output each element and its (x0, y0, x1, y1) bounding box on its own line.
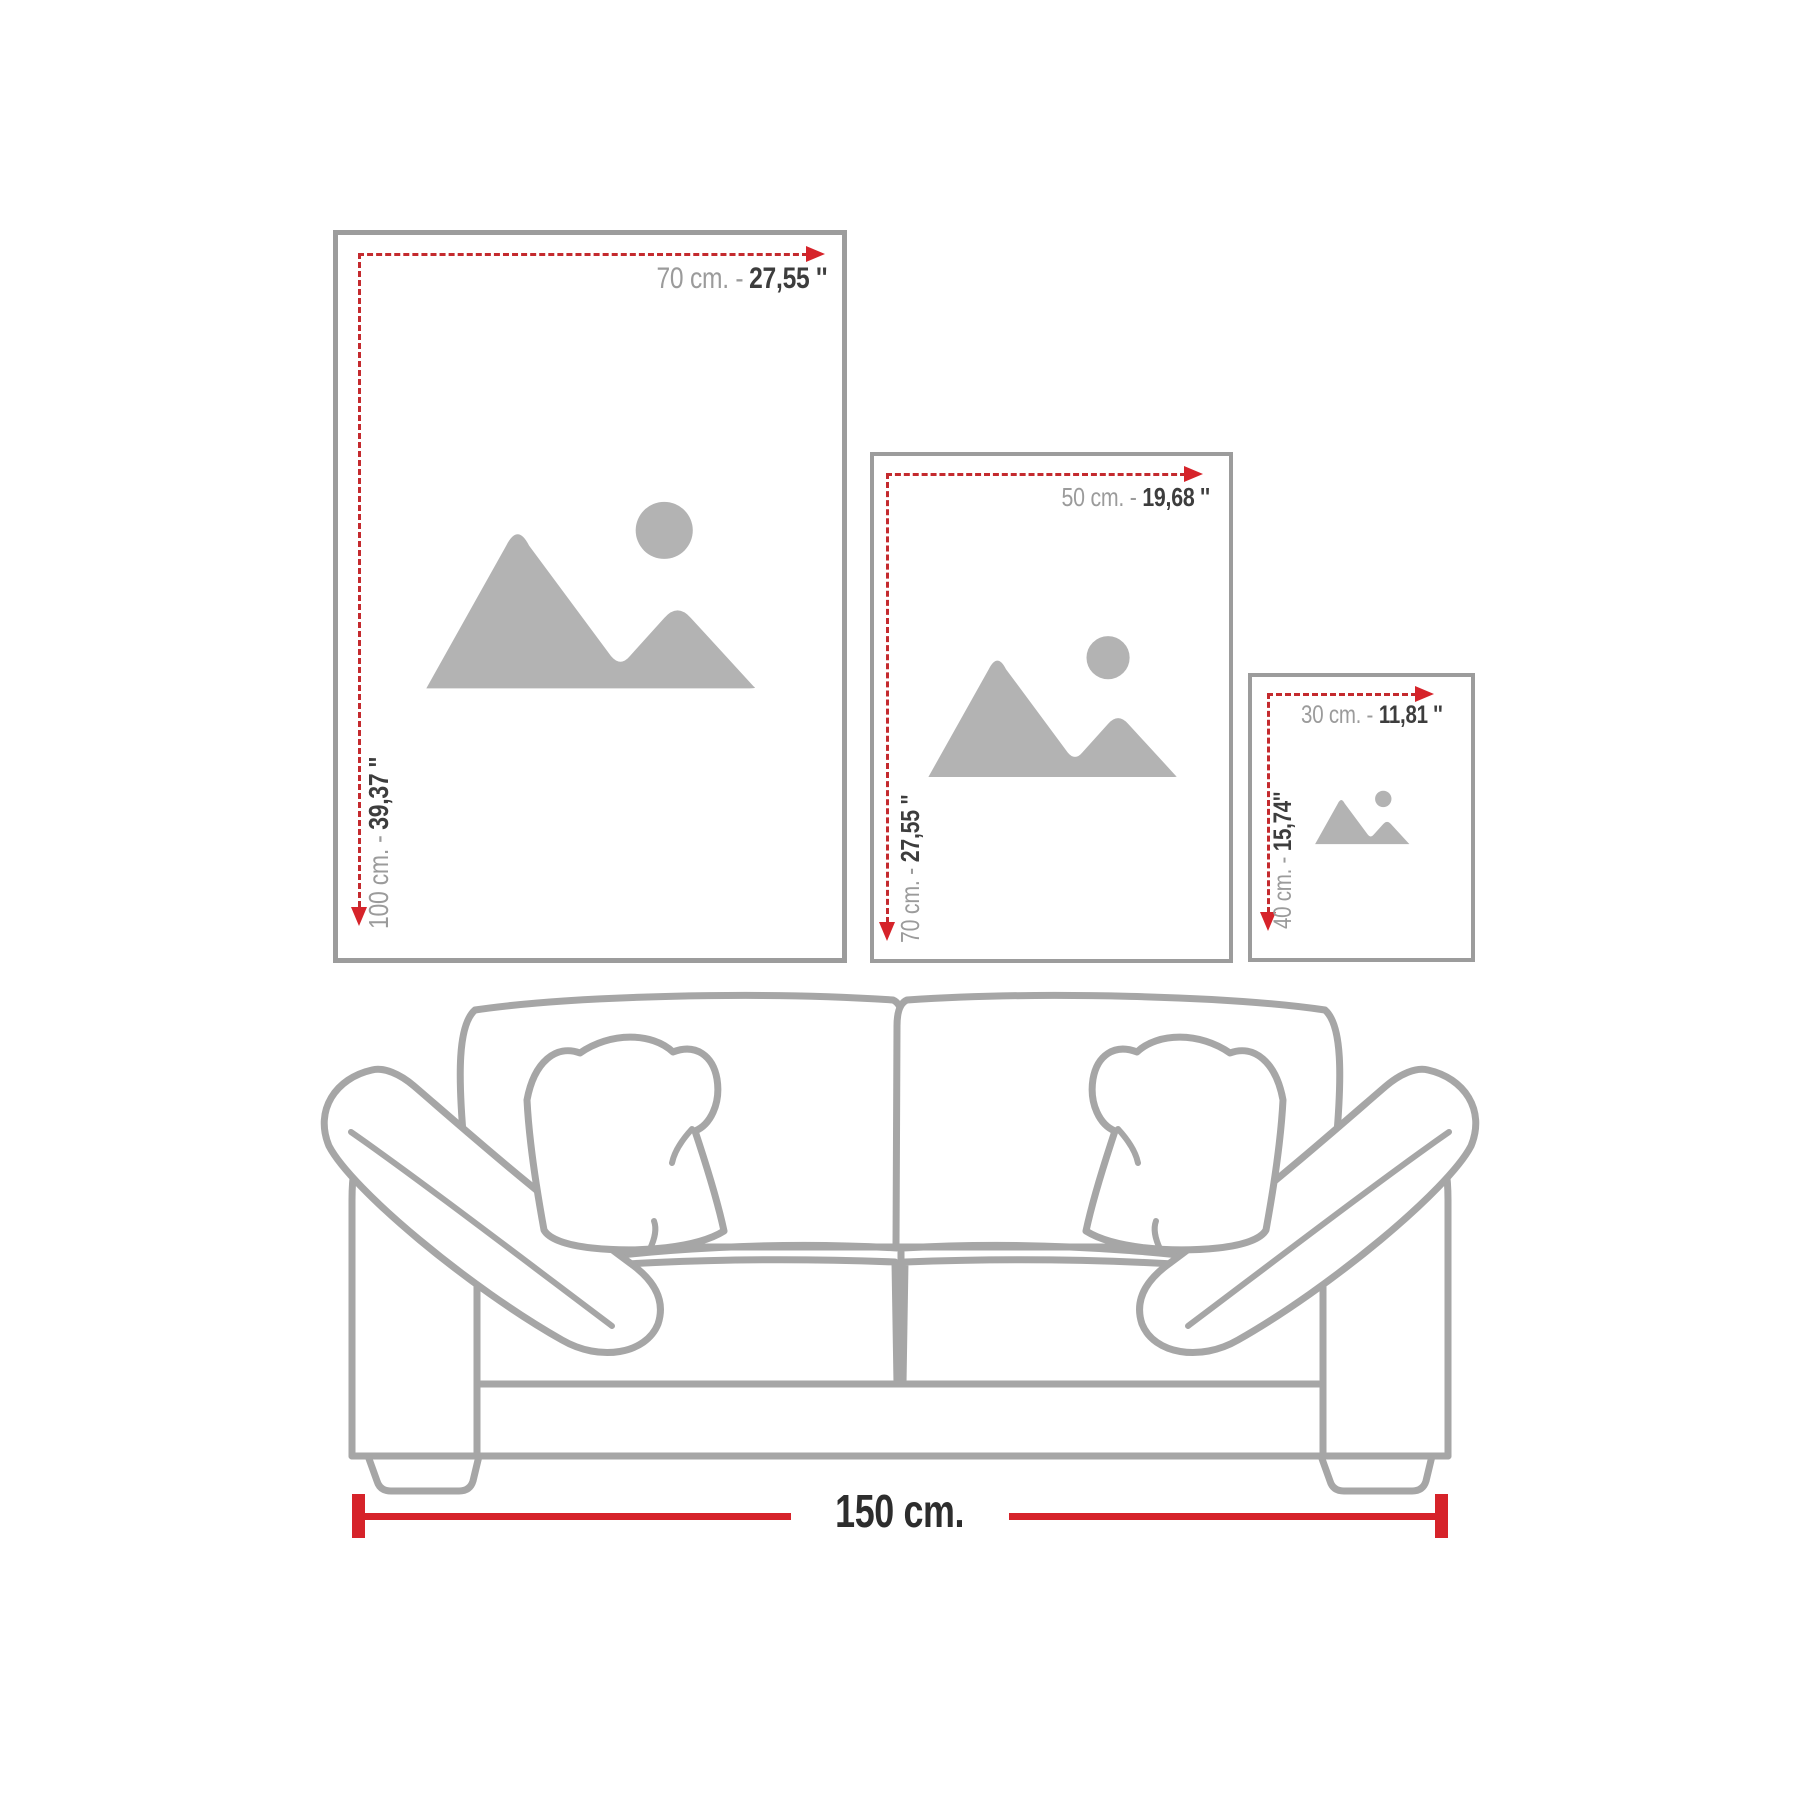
measure-end-cap-left (352, 1494, 365, 1538)
sofa-width-label: 150 cm. (836, 1484, 965, 1538)
measure-line-right (1009, 1513, 1435, 1520)
measure-line-left (365, 1513, 791, 1520)
sofa-width-measure: 150 cm. (352, 1492, 1448, 1540)
size-guide-diagram: 70 cm. -27,55 '' 100 cm. -39,37 '' 50 cm… (0, 0, 1800, 1800)
measure-end-cap-right (1435, 1494, 1448, 1538)
